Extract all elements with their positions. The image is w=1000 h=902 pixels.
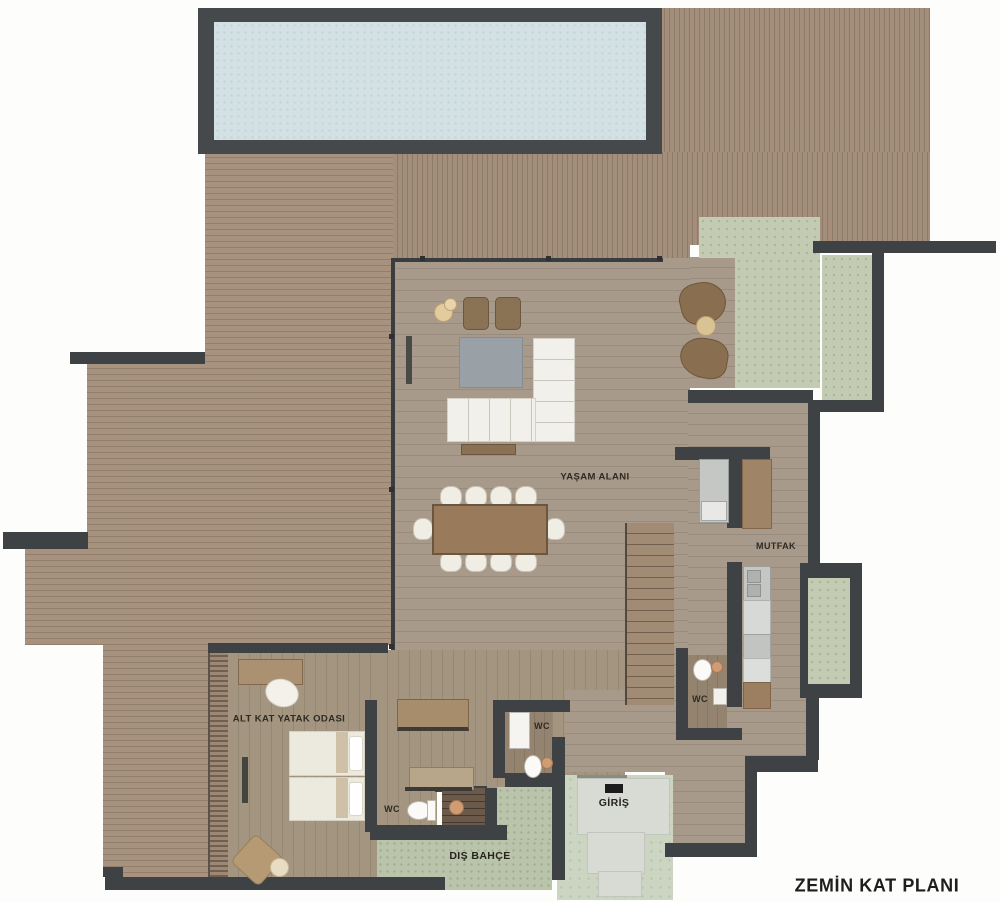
- courtyard-green-upper: [699, 217, 820, 258]
- dining-chair: [545, 518, 565, 540]
- label-wc-ensuite: WC: [534, 721, 550, 731]
- shower: [509, 712, 530, 749]
- armchair: [463, 297, 489, 330]
- window-tick: [420, 256, 425, 261]
- console-table: [461, 444, 516, 455]
- glass-wall-west: [391, 258, 395, 650]
- side-table-round: [270, 858, 289, 877]
- label-outdoor-garden: DIŞ BAHÇE: [449, 850, 510, 862]
- label-living-area: YAŞAM ALANI: [560, 472, 629, 483]
- window-tick: [657, 256, 662, 261]
- wall-bedroom-east: [365, 700, 377, 832]
- bed: [289, 777, 365, 821]
- label-kitchen: MUTFAK: [756, 541, 796, 551]
- toilet: [693, 659, 712, 681]
- deck-left-lower: [25, 549, 393, 645]
- kitchen-counter: [743, 600, 771, 636]
- sink-basin: [747, 570, 761, 583]
- entrance-door-line: [577, 775, 627, 778]
- kitchen-counter-end: [743, 682, 771, 709]
- entrance-path-lower: [598, 871, 642, 897]
- wall-stub-left-1: [70, 352, 205, 364]
- plan-title: ZEMİN KAT PLANI: [795, 876, 960, 897]
- kitchen-lightwell-green: [808, 578, 850, 684]
- wall-kitchen-counter-side: [727, 562, 742, 707]
- wall-entrance-left: [552, 737, 565, 880]
- label-wc-hall: WC: [384, 804, 400, 814]
- deck-left-upper: [87, 363, 393, 549]
- bed-pillow: [349, 782, 363, 816]
- bed: [289, 731, 365, 776]
- courtyard-green-east: [822, 255, 872, 410]
- wall-step-h: [745, 756, 818, 772]
- bed-blanket: [336, 732, 348, 773]
- side-table: [444, 298, 457, 311]
- wall-kitchen-cabinet-side: [727, 458, 742, 528]
- label-bedroom: ALT KAT YATAK ODASI: [233, 714, 345, 725]
- washbasin: [449, 800, 464, 815]
- window-tick: [389, 487, 394, 492]
- window-tick: [389, 644, 394, 649]
- kitchen-oven: [701, 501, 727, 521]
- sofa-l-horizontal: [447, 398, 536, 442]
- floor-plan: YAŞAM ALANI MUTFAK WC ALT KAT YATAK ODAS…: [0, 0, 1000, 902]
- label-entrance: GİRİŞ: [599, 797, 630, 809]
- kitchen-counter: [743, 634, 771, 660]
- glass-wall-north: [391, 258, 663, 262]
- sofa-l-vertical: [533, 338, 575, 442]
- deck-edge-strip: [208, 645, 230, 877]
- media-unit: [406, 336, 412, 384]
- bed-pillow: [349, 736, 363, 771]
- wall-wc-ensuite-top: [493, 700, 570, 712]
- wall-kitchen-top: [688, 390, 813, 403]
- wall-bottom-right: [665, 843, 757, 857]
- washbasin: [711, 661, 723, 673]
- dresser: [242, 757, 248, 803]
- deck-bedroom-side: [103, 645, 208, 877]
- kitchen-cabinet-brown: [742, 459, 772, 529]
- deck-top: [393, 152, 930, 245]
- wall-courtyard-bottom: [810, 400, 884, 412]
- bed-blanket: [336, 778, 348, 818]
- sink-basin: [747, 584, 761, 597]
- wall-courtyard-right: [872, 253, 884, 412]
- rear-hall-floor-lower: [665, 770, 745, 845]
- label-wc-kitchen: WC: [692, 694, 708, 704]
- dining-table: [432, 504, 548, 555]
- wall-bedroom-top: [208, 643, 388, 653]
- deck-below-pool: [205, 152, 393, 363]
- swimming-pool: [214, 22, 646, 140]
- deck-right-of-pool: [660, 8, 930, 152]
- wall-wc-ensuite-left: [493, 712, 505, 778]
- wall-wc-kitchen-left: [676, 648, 688, 740]
- toilet-tank: [427, 800, 436, 821]
- wall-stairs-right: [485, 788, 497, 828]
- kitchen-counter: [743, 658, 771, 684]
- bench-shadow: [405, 787, 472, 791]
- entrance-doormat: [605, 784, 623, 793]
- stone-seat: [696, 316, 716, 336]
- wall-stub-left-2: [3, 532, 88, 549]
- window-tick: [546, 256, 551, 261]
- credenza: [397, 699, 469, 731]
- wall-east-lower: [806, 698, 819, 760]
- wall-top-right: [813, 241, 996, 253]
- window-tick: [389, 334, 394, 339]
- main-staircase: [625, 523, 674, 705]
- dining-chair: [413, 518, 433, 540]
- wall-kitchen-east: [808, 400, 820, 563]
- wall-bottom: [105, 877, 445, 890]
- wc-cabinet: [713, 688, 727, 705]
- deck-top-lower: [393, 245, 690, 259]
- armchair: [495, 297, 521, 330]
- wall-bottom-step: [103, 867, 123, 877]
- toilet: [524, 755, 542, 778]
- entrance-path-mid: [587, 832, 645, 874]
- living-rug: [459, 337, 523, 388]
- washbasin: [541, 757, 553, 769]
- courtyard-green: [735, 257, 820, 388]
- wall-wc-kitchen-bottom: [676, 728, 742, 740]
